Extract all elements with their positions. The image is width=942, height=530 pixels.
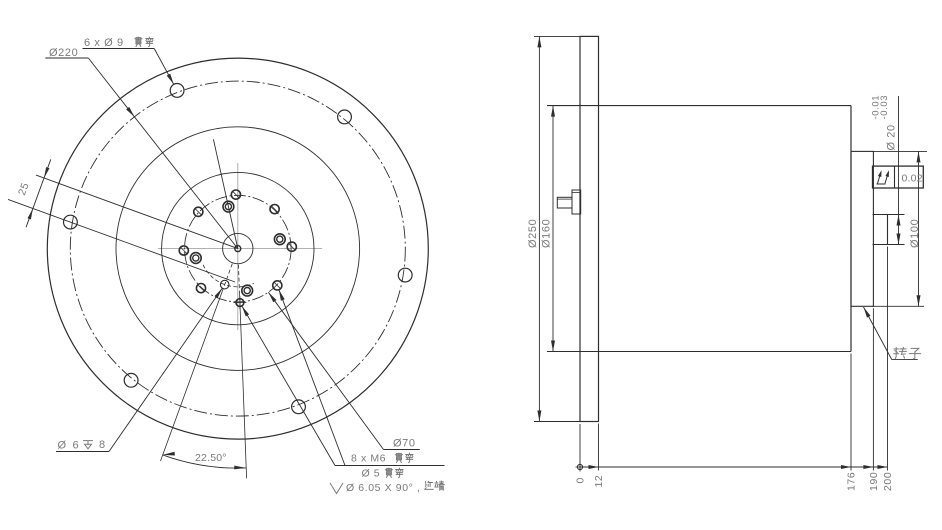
svg-text:Ø220: Ø220 (49, 47, 78, 59)
svg-text:176: 176 (846, 472, 858, 491)
svg-text:6: 6 (73, 440, 80, 452)
svg-text:Ø160: Ø160 (541, 219, 553, 248)
svg-text:6 x Ø 9: 6 x Ø 9 (84, 37, 124, 49)
svg-text:Ø100: Ø100 (909, 219, 921, 248)
svg-text:8 x M6: 8 x M6 (351, 453, 386, 465)
svg-text:Ø 6.05 X 90° ,: Ø 6.05 X 90° , (346, 482, 420, 494)
svg-text:22.50°: 22.50° (195, 452, 227, 464)
svg-text:Ø 5: Ø 5 (362, 468, 381, 480)
svg-text:-0.03: -0.03 (879, 95, 890, 120)
svg-text:200: 200 (882, 472, 894, 491)
svg-text:Ø250: Ø250 (527, 219, 539, 248)
svg-text:0.02: 0.02 (902, 173, 923, 185)
svg-text:12: 12 (593, 475, 605, 488)
svg-text:Ø: Ø (58, 440, 67, 452)
svg-text:0: 0 (575, 477, 587, 483)
svg-text:Ø70: Ø70 (393, 438, 416, 450)
svg-text:8: 8 (99, 439, 106, 451)
svg-text:190: 190 (868, 472, 880, 491)
svg-text:Ø 20: Ø 20 (886, 124, 898, 150)
